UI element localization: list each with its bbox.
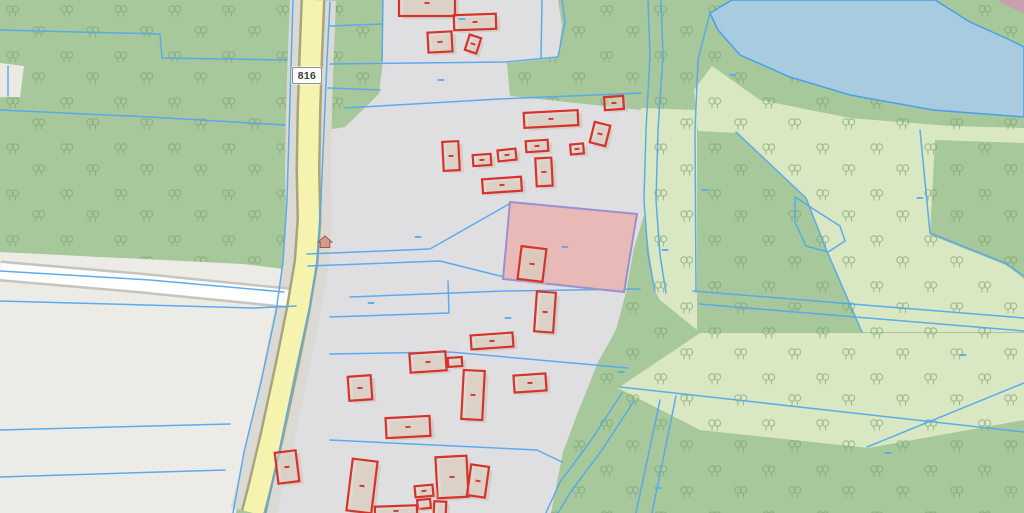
building-footprint[interactable] xyxy=(409,351,450,376)
parcel-label-dash xyxy=(562,246,569,248)
map-canvas[interactable] xyxy=(0,0,1024,513)
parcel-label-dash xyxy=(702,189,709,191)
building-footprint[interactable] xyxy=(526,139,553,155)
map-viewport[interactable]: 816 xyxy=(0,0,1024,513)
building-footprint[interactable] xyxy=(399,0,459,19)
building-label-tick xyxy=(548,118,553,120)
building-label-tick xyxy=(527,382,532,384)
building-label-tick xyxy=(499,184,504,186)
building-label-tick xyxy=(437,41,442,43)
building-label-tick xyxy=(425,361,430,363)
parcel-label-dash xyxy=(917,197,924,199)
building-label-tick xyxy=(542,311,547,313)
parcel-label-dash xyxy=(459,18,466,20)
building-footprint[interactable] xyxy=(442,141,464,174)
building-label-tick xyxy=(470,394,475,396)
building-label-tick xyxy=(448,155,453,157)
road-shield-816: 816 xyxy=(292,67,322,84)
building-footprint[interactable] xyxy=(467,464,494,501)
parcel-label-dash xyxy=(368,302,375,304)
building-label-tick xyxy=(479,159,484,161)
building-footprint[interactable] xyxy=(348,375,377,404)
parcel-label-dash xyxy=(662,249,669,251)
parcel-label-dash xyxy=(438,79,445,81)
building-footprint[interactable] xyxy=(454,14,501,34)
building-footprint[interactable] xyxy=(517,246,550,285)
building-footprint[interactable] xyxy=(346,459,381,513)
parcel-label-dash xyxy=(655,487,662,489)
building-footprint[interactable] xyxy=(386,416,435,441)
road-number-label: 816 xyxy=(298,70,316,82)
building-outline xyxy=(434,501,447,513)
building-footprint[interactable] xyxy=(461,370,489,423)
building-footprint[interactable] xyxy=(427,31,456,55)
building-label-tick xyxy=(489,340,494,342)
building-footprint[interactable] xyxy=(275,450,304,487)
building-label-tick xyxy=(405,426,410,428)
parcel-label-dash xyxy=(960,354,967,356)
building-footprint[interactable] xyxy=(534,291,560,335)
parcel-label-dash xyxy=(730,74,737,76)
parcel-label-dash xyxy=(885,452,892,454)
building-label-tick xyxy=(393,510,398,512)
parcel-boundary-line xyxy=(382,0,383,61)
building-footprint[interactable] xyxy=(535,157,557,189)
building-label-tick xyxy=(425,2,430,4)
building-label-tick xyxy=(449,476,454,478)
parcel-label-dash xyxy=(618,371,625,373)
parcel-boundary-line xyxy=(541,0,542,58)
building-label-tick xyxy=(472,21,477,23)
building-footprint[interactable] xyxy=(482,176,526,196)
building-label-tick xyxy=(611,102,616,104)
building-footprint[interactable] xyxy=(513,373,550,395)
parcel-label-dash xyxy=(505,317,512,319)
parcel-label-dash xyxy=(415,236,422,238)
building-footprint[interactable] xyxy=(524,110,583,131)
building-footprint[interactable] xyxy=(471,332,518,352)
building-label-tick xyxy=(534,145,539,147)
building-label-tick xyxy=(541,171,546,173)
building-footprint[interactable] xyxy=(375,505,421,513)
building-label-tick xyxy=(357,387,362,389)
building-outline xyxy=(417,499,431,509)
building-outline xyxy=(448,357,463,367)
